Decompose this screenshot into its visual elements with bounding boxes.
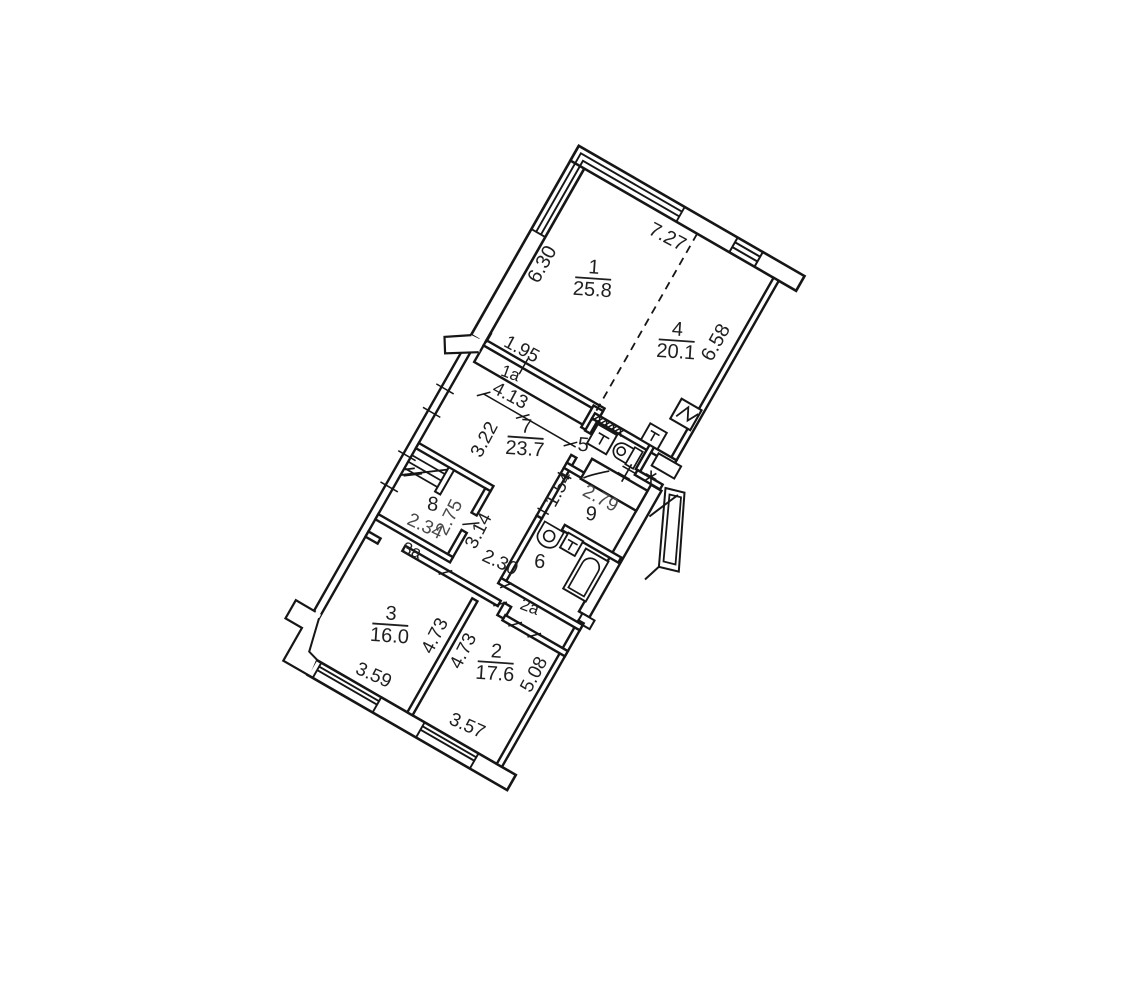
svg-text:23.7: 23.7 <box>505 437 545 462</box>
svg-text:17.6: 17.6 <box>475 662 515 687</box>
svg-text:3: 3 <box>385 602 398 625</box>
svg-text:20.1: 20.1 <box>656 340 696 365</box>
svg-text:7: 7 <box>520 415 533 438</box>
svg-text:1: 1 <box>588 256 601 279</box>
svg-text:16.0: 16.0 <box>369 624 409 649</box>
svg-text:2: 2 <box>490 640 503 663</box>
svg-text:25.8: 25.8 <box>572 278 612 303</box>
svg-text:8: 8 <box>426 493 439 516</box>
svg-text:4: 4 <box>671 318 684 341</box>
svg-text:6: 6 <box>533 550 546 573</box>
svg-text:5: 5 <box>577 434 590 457</box>
